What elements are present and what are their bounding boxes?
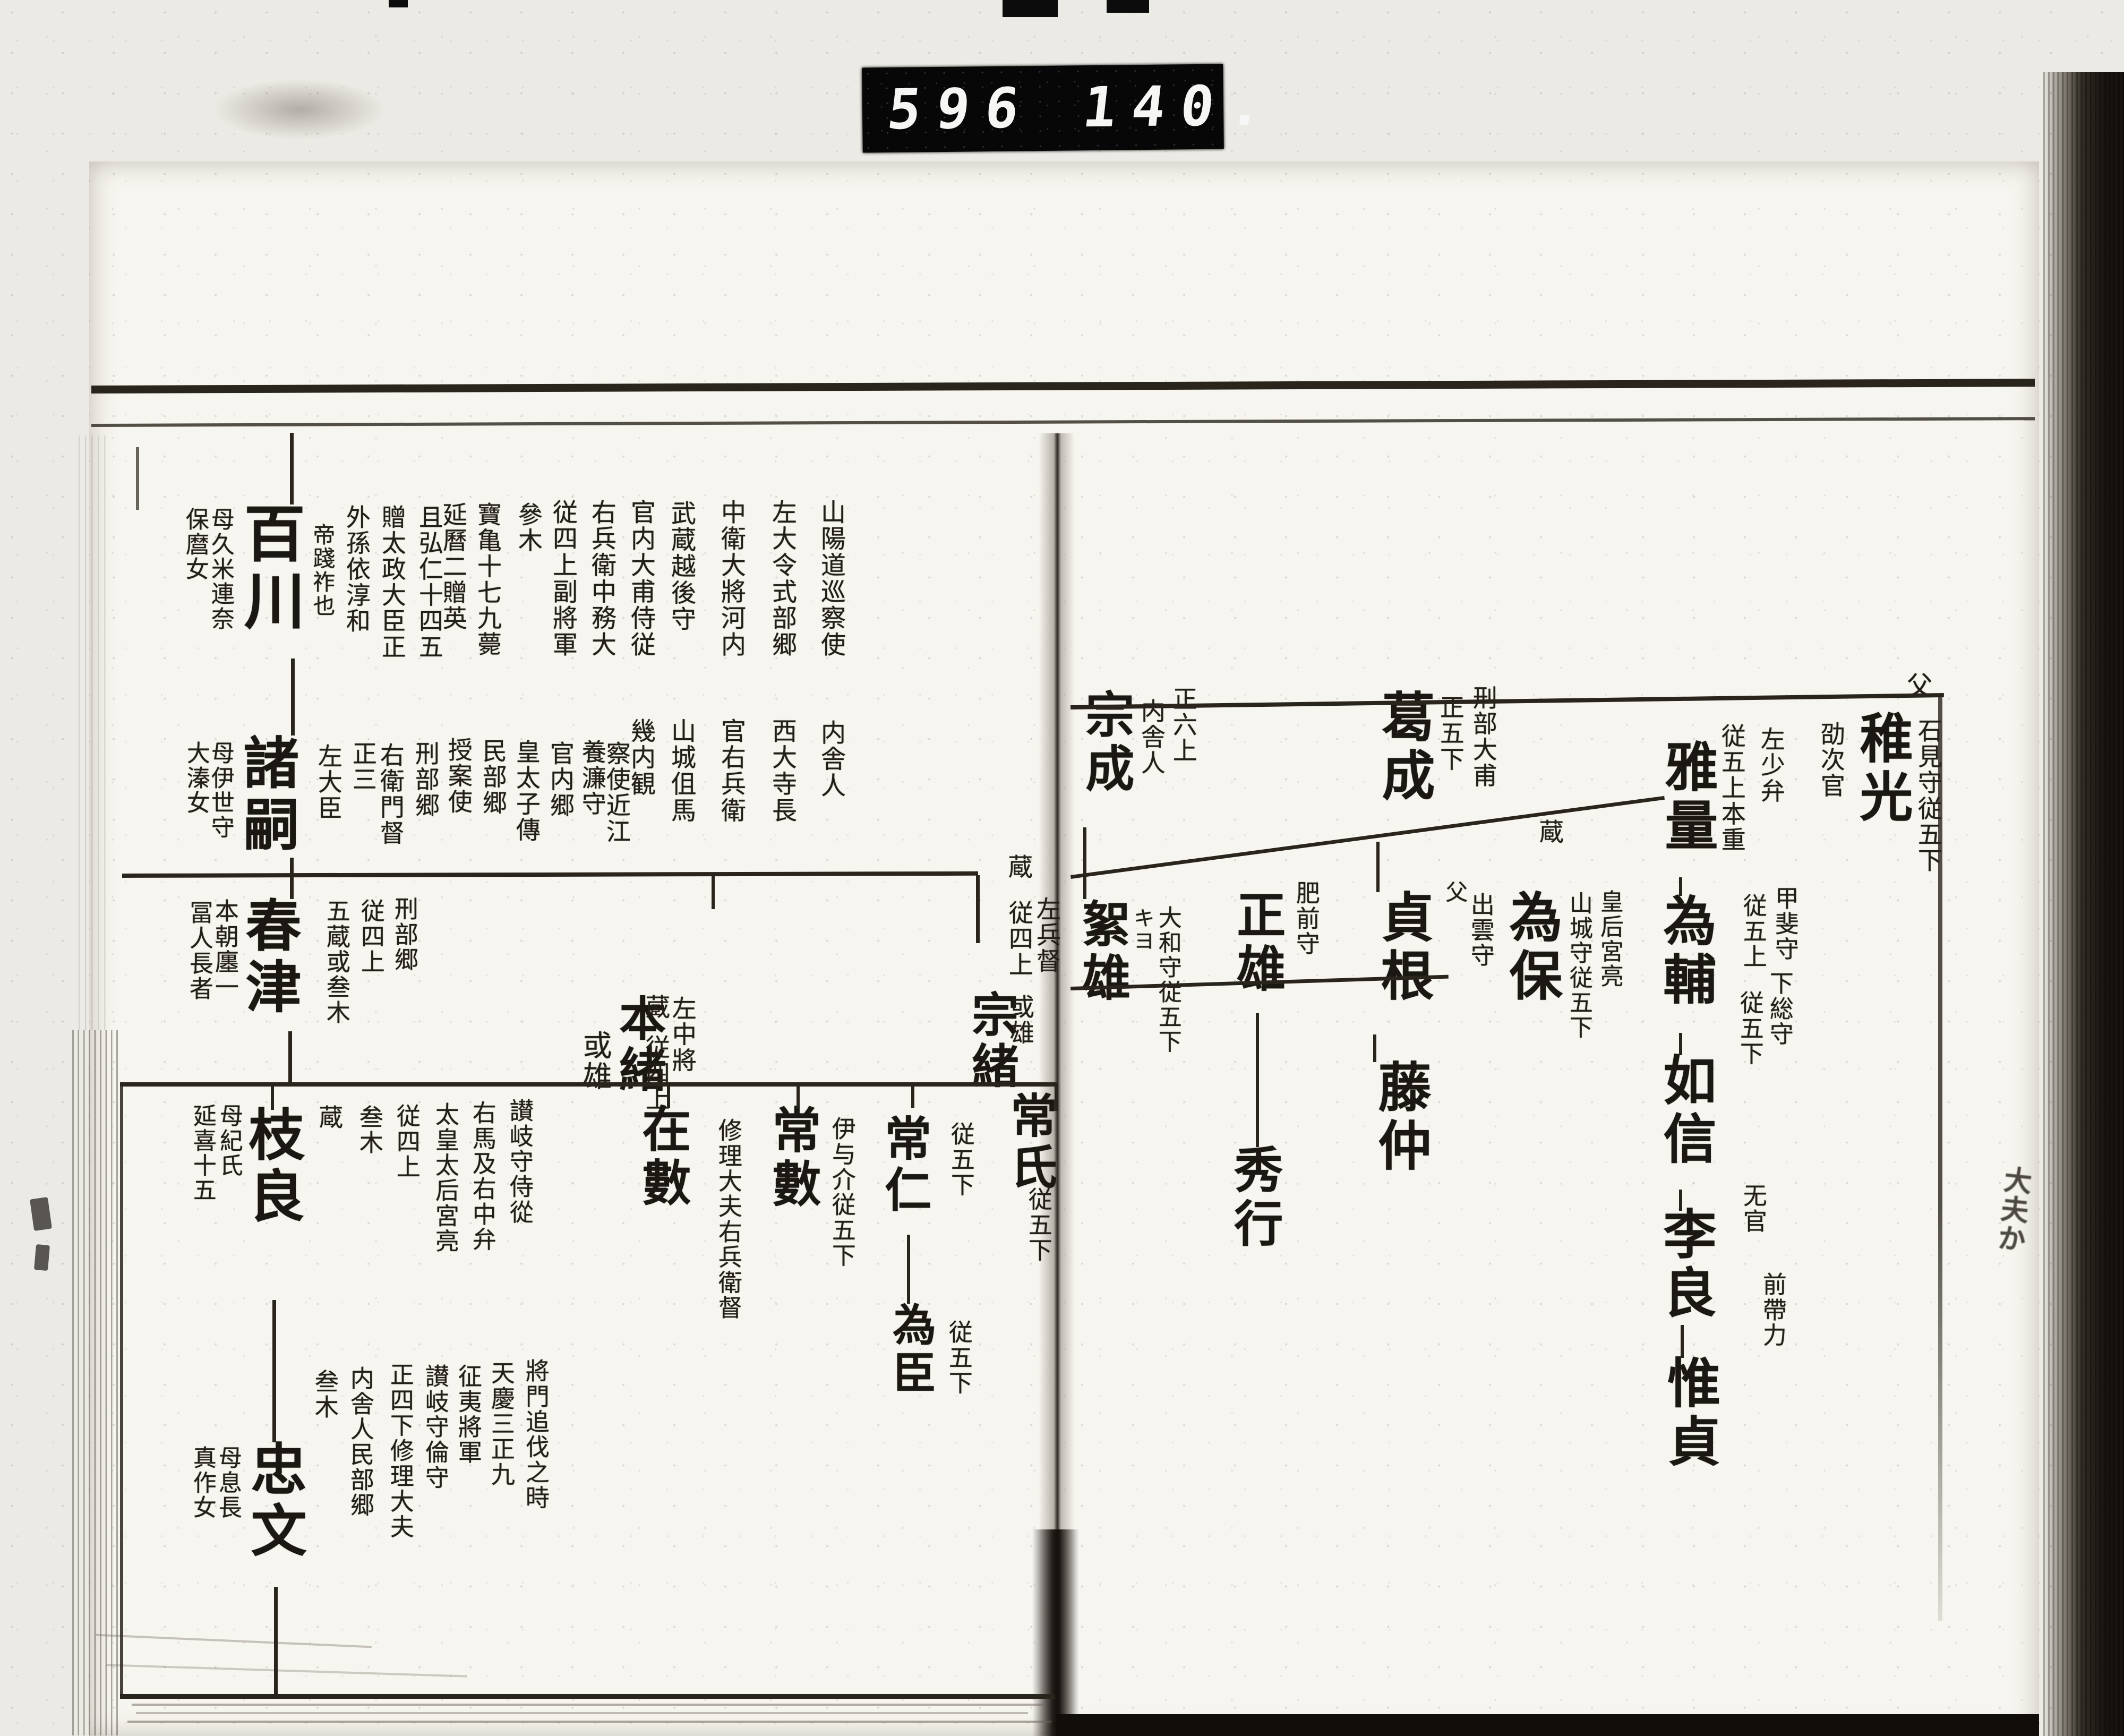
ann-edayoshi-office: 讃岐守侍從 (507, 1098, 532, 1225)
ann-sadane-office: 出雲守 (1468, 892, 1493, 968)
ann-tsuneuji-rank: 従五下 (1026, 1187, 1050, 1263)
ann-wakamitsu-office: 左少弁 (1759, 726, 1784, 804)
v-edayoshi-tadabumi (272, 1300, 276, 1442)
v-yukinobu-sueyoshi (1679, 1190, 1682, 1211)
ann-edayoshi-office: 太皇太后宮亮 (433, 1102, 457, 1254)
ann-otsugu-office: 官内郷 (548, 741, 573, 818)
film-tab (389, 0, 408, 7)
name-tameyasu: 為保 (1504, 890, 1558, 1006)
ann-otsugu-office: 幾内観 (628, 718, 653, 797)
v-above-momokawa (290, 433, 294, 504)
ann-nukio-kana: キヨ (1131, 907, 1153, 952)
ann-tamesuke-office: 甲斐守 (1772, 886, 1797, 962)
v-harutsu-rule (288, 1031, 292, 1083)
ann-tsunehito-rank: 従五下 (948, 1122, 973, 1198)
note-edayoshi-mother: 延喜十五 (190, 1104, 214, 1203)
page-edge-left-faint (79, 435, 108, 1030)
ann-wakamitsu-office: 劭次官 (1819, 721, 1844, 799)
ann-munenari-office: 内舎人 (1139, 698, 1164, 776)
ann-yukinobu-rank: 従五下 (1737, 990, 1762, 1066)
name-kuzunari: 葛成 (1376, 689, 1431, 806)
corner-tsuneuji (1055, 1083, 1058, 1111)
ann-momokawa-note: 外孫依淳和 (344, 504, 369, 634)
tick-tsunehito (911, 1084, 914, 1108)
ann-otsugu-office: 民部郷 (481, 738, 506, 816)
ann-muneo-note: 或雄 (1008, 994, 1033, 1046)
ann-otsugu-office: 山城伹馬 (668, 718, 693, 824)
name-sueyoshi: 李良 (1658, 1207, 1712, 1323)
corner-muneo (976, 875, 980, 943)
note-momokawa-mother: 保麿女 (183, 507, 207, 581)
frame-counter-right: 140. (1080, 73, 1282, 140)
page-edge-right (2043, 72, 2124, 1736)
ann-otsugu-office: 左大臣 (316, 743, 341, 821)
tick-tsunekazu (796, 1084, 800, 1108)
margin-mark (34, 1244, 50, 1271)
v-tsunehito-tameomi (907, 1235, 910, 1304)
v-momokawa-otsugu (291, 659, 295, 736)
ann-tsunekazu-office: 伊与介従五下 (829, 1116, 854, 1268)
note-harutsu: 冨人長者 (187, 900, 211, 1002)
ann-wakamitsu-office: 石見守従五下 (1916, 718, 1941, 874)
scan-smudge (212, 79, 387, 140)
ann-motoo-rank: 従四上 (644, 1034, 669, 1112)
ann-otsugu-office: 刑部郷 (413, 741, 438, 818)
note-tadabumi-mother: 母息長 (216, 1446, 239, 1520)
name-sadane: 貞根 (1375, 890, 1429, 1006)
ann-otsugu-office: 右衛門督 (378, 742, 403, 846)
tick-arikazu (667, 1084, 670, 1108)
name-wakamitsu: 稚光 (1854, 711, 1908, 827)
ann-otsugu-office: 養濂守 (580, 739, 605, 817)
ann-harutsu-rank: 従四上 (358, 899, 383, 974)
name-edayoshi: 枝良 (243, 1106, 300, 1228)
ann-momokawa-office: 従四上副將軍 (550, 499, 575, 658)
ann-muneo-office: 左兵督 (1034, 896, 1059, 974)
ann-tameomi-rank: 従五下 (946, 1320, 971, 1396)
v-sadane-fujinaka (1373, 1034, 1376, 1062)
note-harutsu: 本朝廛一 (212, 899, 237, 1000)
ann-tameyasu-office: 皇后宮亮 (1597, 890, 1621, 989)
ann-otsugu-office: 察使近江 (604, 741, 629, 844)
note-momokawa-mother: 母久米連奈 (208, 507, 232, 631)
ann-momokawa-office: 左大令式部郷 (769, 499, 794, 658)
frame-counter: 596 140. (862, 64, 1224, 152)
name-tamesuke: 為輔 (1658, 893, 1712, 1010)
name-fujinaka: 藤仲 (1373, 1059, 1427, 1176)
ann-tadabumi-office: 征夷將軍 (456, 1364, 480, 1465)
ann-tadabumi-office: 内舎人民部郷 (348, 1366, 372, 1518)
v-tadabumi-rule (274, 1587, 278, 1696)
name-yukinobu: 如信 (1658, 1053, 1712, 1169)
margin-mark (30, 1197, 52, 1231)
ann-otsugu-office: 西大寺長 (769, 718, 794, 824)
v-tamesuke-yukinobu (1679, 1033, 1682, 1055)
ann-otsugu-office: 皇太子傳 (514, 739, 539, 843)
ann-motoo-office: 左中將 (670, 996, 695, 1073)
ann-tamesuke-rank: 従五上 (1741, 893, 1765, 969)
tick-motoo (712, 876, 715, 909)
note-otsugu-mother: 大溱女 (184, 741, 208, 815)
ann-tadabumi-note: 將門追伐之時 (523, 1358, 547, 1510)
v-masao-hideyuki (1256, 1013, 1259, 1147)
v-otsugu-harutsu (290, 858, 294, 899)
ann-muneo-kura: 蔵 (1006, 854, 1031, 880)
ann-momokawa-note: 帝踐祚也 (311, 523, 333, 618)
ann-sueyoshi-note: 无官 (1741, 1183, 1765, 1234)
ann-edayoshi-office: 右馬及右中弁 (470, 1100, 494, 1252)
page-stack-line (136, 1712, 1028, 1714)
scanned-page: 596 140. 山陽道巡察使左大令式部郷中衛大將河内武蔵越後守官内大甫侍従右兵… (0, 0, 2124, 1736)
ann-momokawa-note: 寶亀十七九薨 (475, 502, 500, 657)
ann-edayoshi-note: 叁木 (357, 1105, 381, 1155)
film-tab (1107, 0, 1149, 13)
ann-tadabumi-office: 讃岐守倫守 (423, 1364, 447, 1491)
film-tab (1003, 0, 1058, 17)
page-stack-line (132, 1704, 1045, 1706)
right-border (1938, 697, 1942, 1621)
ann-koresada-note: 前帶力 (1760, 1272, 1785, 1348)
ann-harutsu-note: 五蔵或叁木 (324, 899, 348, 1025)
name-harutsu: 春津 (240, 896, 297, 1019)
bottom-scan-bar (1056, 1714, 2039, 1736)
ann-tsunekazu-office: 修理大夫右兵衛督 (716, 1118, 740, 1321)
ann-edayoshi-kura: 蔵 (316, 1105, 341, 1130)
ann-momokawa-office: 山陽道巡察使 (818, 499, 843, 658)
ann-tadabumi-note: 天慶三正九 (489, 1361, 513, 1487)
ann-masao-office: 肥前守 (1294, 880, 1318, 956)
ann-momokawa-note: 贈太政大臣正 (380, 504, 405, 660)
ann-momokawa-note: 參木 (516, 502, 541, 554)
ann-tadabumi-office: 正四下修理大夫 (388, 1362, 412, 1540)
ann-nukio-office: 大和守従五下 (1155, 905, 1179, 1054)
ann-momokawa-office: 武蔵越後守 (668, 500, 693, 632)
name-masakazu: 雅量 (1659, 739, 1714, 856)
name-koresada: 惟貞 (1662, 1355, 1716, 1472)
ann-wakamitsu-note: 従五上本重 (1719, 723, 1744, 853)
v-kuzunari-sadane (1376, 842, 1380, 892)
name-tadabumi: 忠文 (245, 1440, 302, 1563)
left-bottom-rule (120, 1694, 1055, 1699)
ann-kuzunari-rank: 正五下 (1438, 695, 1463, 772)
ann-otsugu-office: 官右兵衛 (718, 718, 743, 824)
page-edge-left (72, 1030, 119, 1735)
ann-momokawa-note: 且弘仁十四五 (417, 504, 442, 660)
name-hideyuki: 秀行 (1229, 1144, 1279, 1252)
left-band-rule-2 (120, 1082, 1057, 1087)
left-border (120, 1083, 123, 1698)
ann-momokawa-office: 中衛大將河内 (718, 499, 743, 658)
ann-edayoshi-rank: 従四上 (394, 1104, 418, 1179)
ann-tameyasu-kura: 蔵 (1537, 819, 1562, 845)
frame-counter-left: 596 (884, 75, 1038, 142)
ann-munenari-rank: 正六上 (1171, 686, 1196, 764)
name-tameomi: 為臣 (888, 1302, 932, 1398)
name-otsugu: 諸嗣 (238, 734, 295, 857)
ann-momokawa-note: 延曆二贈英 (441, 502, 466, 631)
page-stack-line (127, 1721, 1051, 1723)
name-tsunekazu: 常數 (767, 1105, 817, 1212)
name-tsunehito: 常仁 (880, 1114, 928, 1217)
name-tsuneuji: 常氏 (1006, 1091, 1054, 1194)
name-momokawa: 百川 (238, 502, 300, 636)
ann-momokawa-office: 官内大甫侍従 (628, 499, 653, 658)
note-otsugu-mother: 母伊世守 (208, 741, 232, 840)
ann-momokawa-office: 右兵衛中務大 (588, 499, 614, 658)
ann-muneo-rank: 従四上 (1007, 900, 1032, 978)
v-sueyoshi-koresada (1681, 1325, 1684, 1358)
ann-otsugu-office: 授案使 (446, 737, 471, 815)
name-arikazu: 在數 (637, 1104, 687, 1211)
ann-tadabumi-note: 叁木 (312, 1369, 337, 1419)
note-edayoshi-mother: 母紀氏 (217, 1104, 241, 1178)
ann-otsugu-office: 内舎人 (818, 720, 843, 799)
ann-harutsu-office: 刑部郷 (392, 896, 416, 972)
frame-tick-topleft (136, 447, 139, 510)
ann-yukinobu-office: 下総守 (1767, 971, 1792, 1047)
note-tadabumi-mother: 真作女 (190, 1446, 214, 1520)
ann-tameyasu-office: 山城守従五下 (1566, 891, 1590, 1040)
tick-edayoshi (271, 1084, 274, 1110)
ann-motoo-kura: 蔵 (644, 994, 669, 1020)
ann-otsugu-rank: 正三 (350, 741, 375, 793)
ann-sadane-father: 父 (1443, 880, 1466, 904)
v-munenari-nukio (1083, 827, 1086, 899)
v-masakazu-tamesuke (1679, 877, 1682, 896)
